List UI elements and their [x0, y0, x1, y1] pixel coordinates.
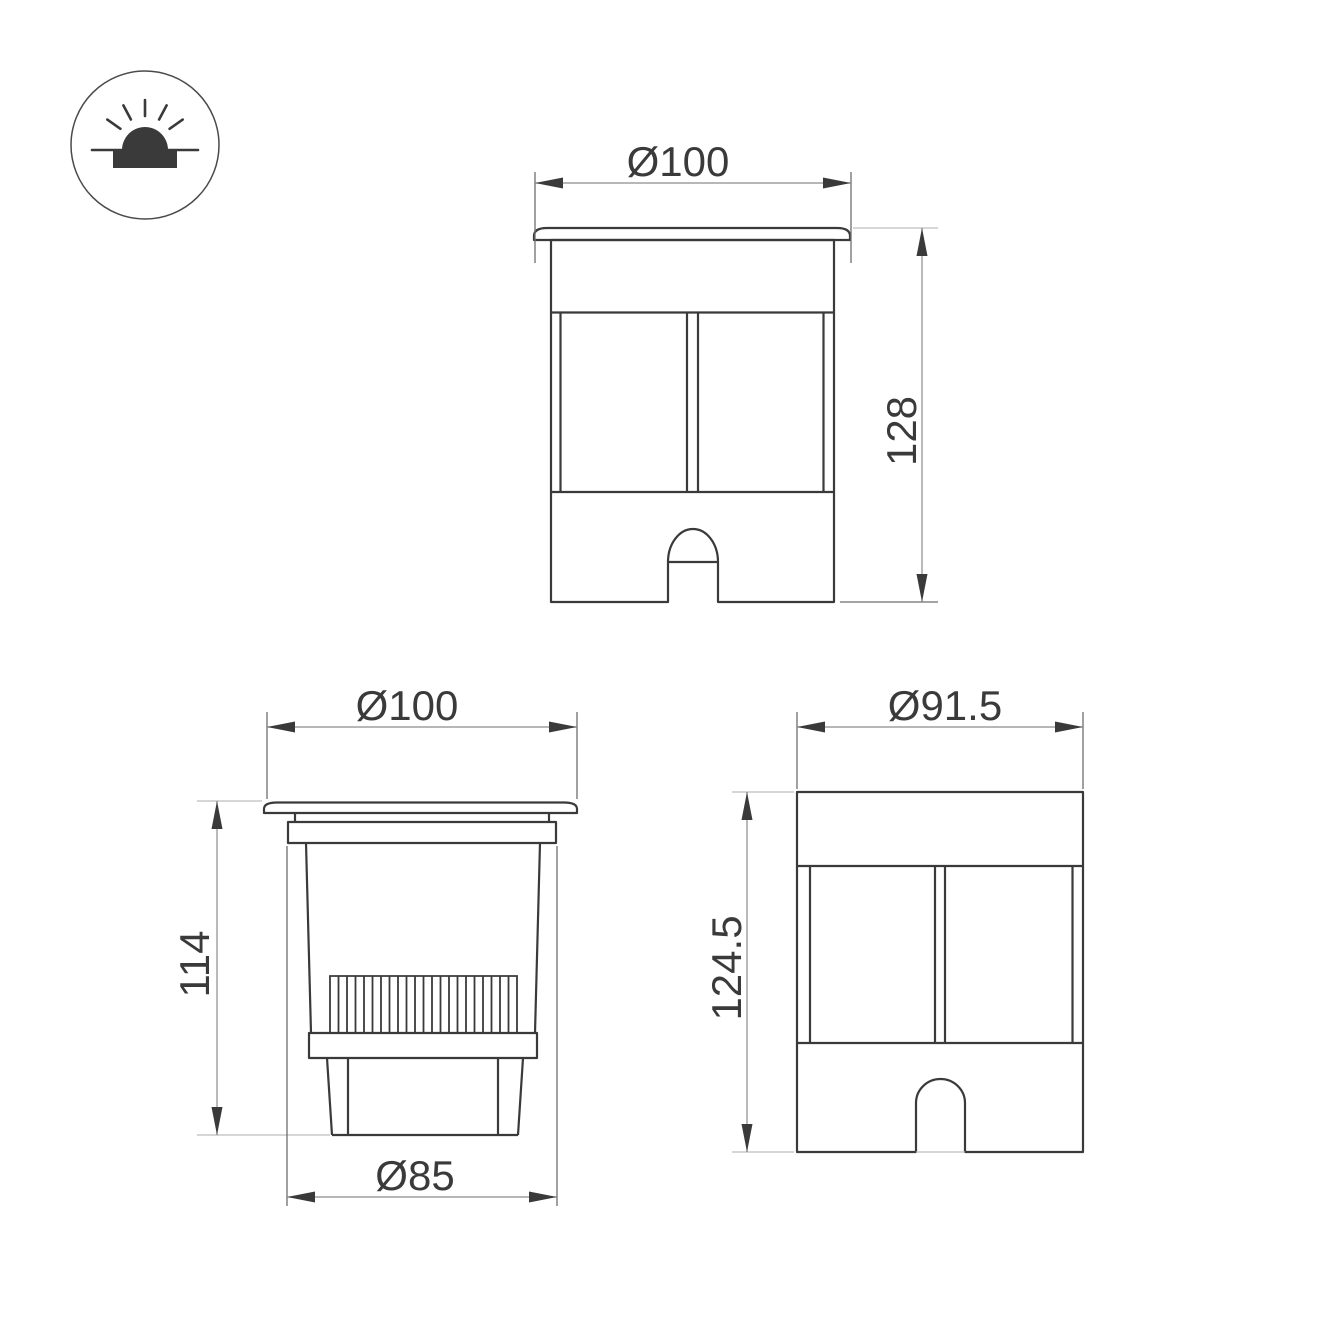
- arrowhead-left: [267, 722, 295, 733]
- rear-body-outline: [797, 792, 1083, 1152]
- front-band-lines: [551, 313, 834, 493]
- front-width-label: Ø100: [627, 138, 730, 185]
- rear-width-dimension: Ø91.5: [797, 682, 1083, 789]
- rear-height-label: 124.5: [703, 915, 750, 1020]
- section-led-plate: [309, 1033, 537, 1058]
- rear-height-dimension: 124.5: [703, 792, 794, 1152]
- section-collar: [288, 822, 556, 843]
- icon-light-rays: [107, 100, 182, 129]
- recessed-ground-light-icon: [71, 71, 219, 219]
- rear-window-mullions: [810, 866, 1073, 1043]
- section-top-width-dimension: Ø100: [267, 682, 577, 799]
- arrowhead-top: [742, 792, 753, 820]
- front-width-dimension: Ø100: [535, 138, 851, 263]
- arrowhead-bottom: [212, 1107, 223, 1135]
- front-body-outline: [551, 240, 834, 602]
- arrowhead-left: [535, 178, 563, 189]
- arrowhead-right: [529, 1192, 557, 1203]
- front-height-label: 128: [878, 396, 925, 466]
- rear-view: Ø91.5 124.5: [703, 682, 1083, 1152]
- arrowhead-top: [212, 801, 223, 829]
- arrowhead-bottom: [917, 574, 928, 602]
- arrowhead-right: [823, 178, 851, 189]
- section-bottom-cap: [327, 1058, 523, 1135]
- heatsink-fins: [339, 976, 509, 1033]
- rear-width-label: Ø91.5: [888, 682, 1002, 729]
- arrowhead-left: [287, 1192, 315, 1203]
- arrowhead-top: [917, 228, 928, 256]
- section-flange: [264, 803, 577, 814]
- arrowhead-right: [549, 722, 577, 733]
- section-view: Ø100 114 Ø85: [171, 682, 577, 1206]
- icon-housing: [113, 150, 177, 168]
- section-height-label: 114: [171, 931, 218, 998]
- front-window-mullions: [561, 313, 824, 493]
- section-neck: [295, 813, 549, 822]
- arrowhead-bottom: [742, 1124, 753, 1152]
- arrowhead-right: [1055, 722, 1083, 733]
- arrowhead-left: [797, 722, 825, 733]
- section-bottom-width-label: Ø85: [375, 1152, 454, 1199]
- section-top-width-label: Ø100: [356, 682, 459, 729]
- front-flange: [534, 228, 850, 240]
- technical-drawing-page: Ø100 128 Ø100: [0, 0, 1331, 1331]
- icon-dome: [122, 127, 168, 150]
- front-height-dimension: 128: [840, 228, 938, 602]
- dimension-drawing: Ø100 128 Ø100: [0, 0, 1331, 1331]
- rear-band-lines: [797, 866, 1083, 1043]
- front-view: Ø100 128: [534, 138, 938, 602]
- extension-lines: [535, 172, 851, 263]
